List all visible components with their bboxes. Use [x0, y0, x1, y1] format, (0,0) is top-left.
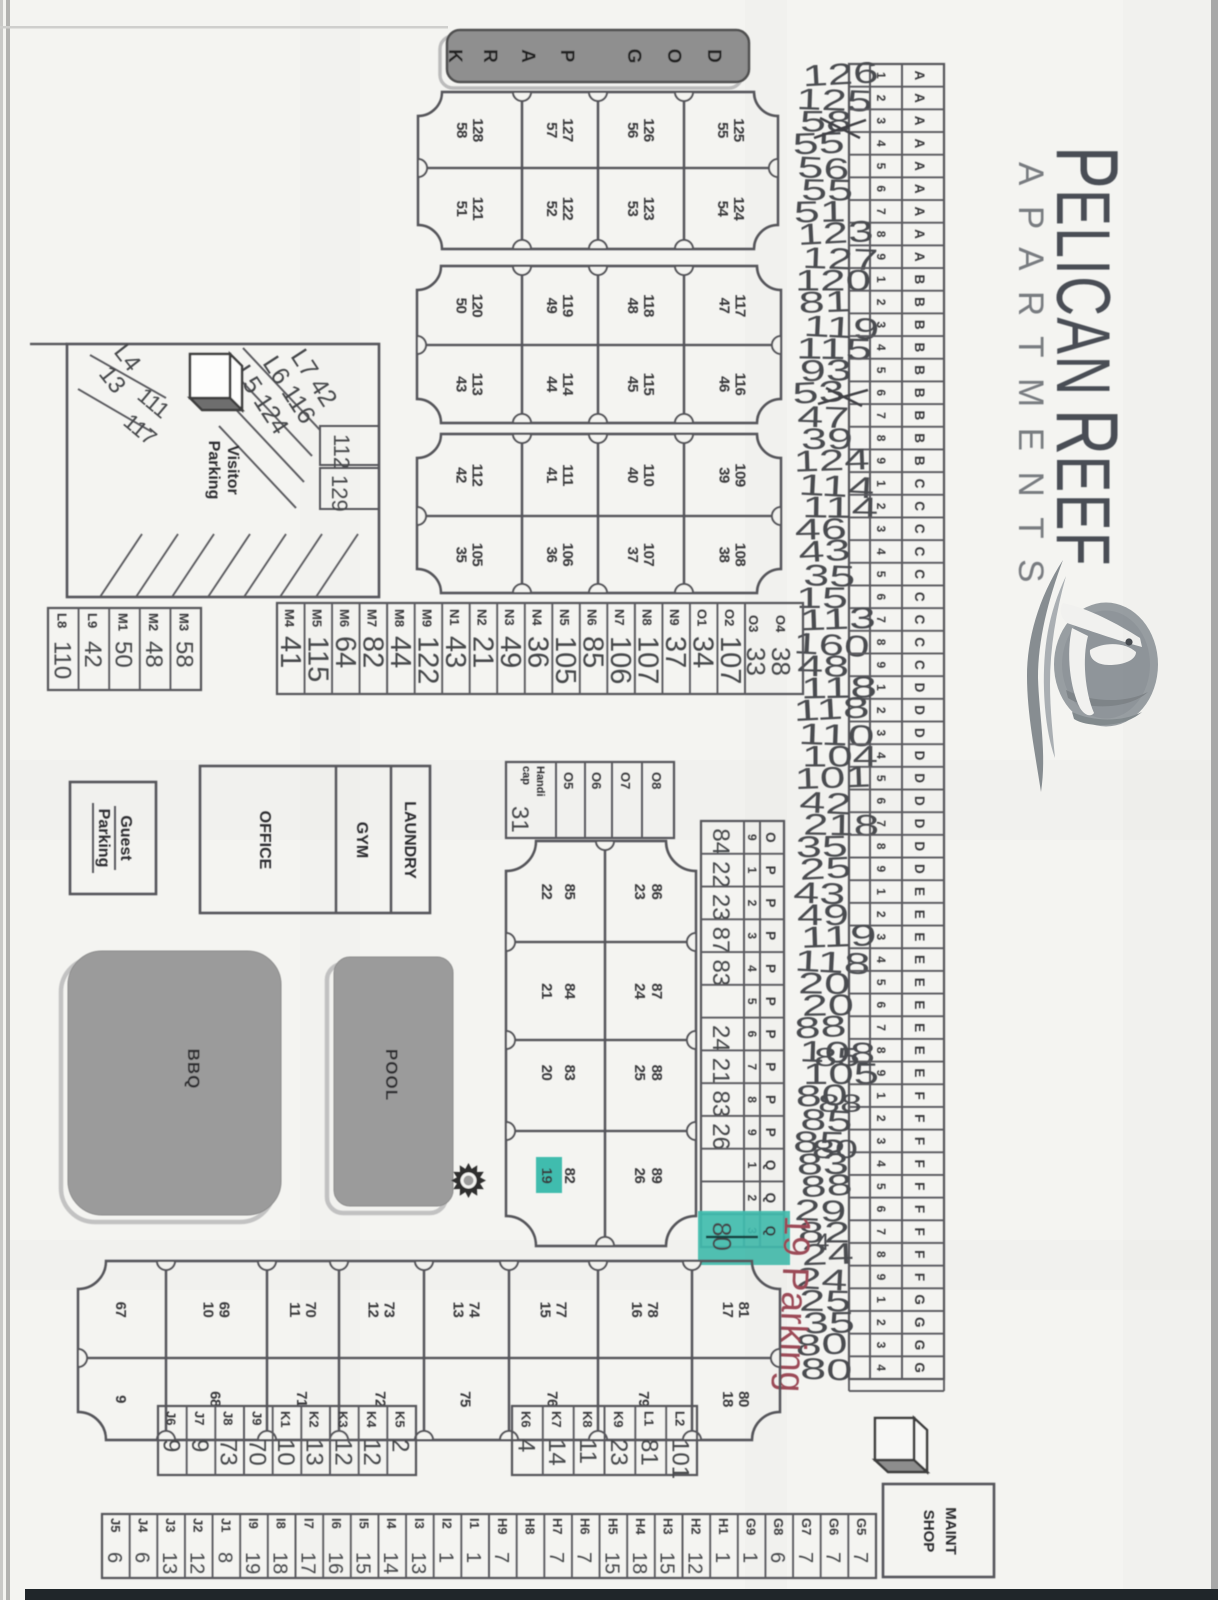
svg-text:83: 83	[561, 1065, 578, 1081]
svg-text:A: A	[912, 116, 927, 126]
svg-text:123: 123	[640, 197, 657, 221]
svg-text:7: 7	[874, 616, 888, 623]
svg-text:45: 45	[624, 376, 641, 392]
svg-text:H3: H3	[661, 1518, 676, 1535]
svg-text:F: F	[912, 1228, 927, 1236]
svg-text:8: 8	[874, 231, 888, 238]
svg-text:84: 84	[561, 983, 578, 1000]
svg-text:G: G	[912, 1340, 927, 1351]
svg-text:21: 21	[538, 983, 555, 999]
svg-text:80: 80	[812, 1134, 858, 1164]
svg-text:89: 89	[648, 1168, 665, 1184]
svg-text:8: 8	[874, 435, 888, 442]
svg-text:C: C	[912, 615, 927, 625]
svg-text:SHOP: SHOP	[920, 1510, 937, 1553]
svg-text:124: 124	[730, 197, 747, 222]
svg-text:2: 2	[874, 911, 888, 918]
svg-text:26: 26	[707, 1123, 734, 1150]
svg-text:15: 15	[656, 1552, 678, 1574]
svg-text:6: 6	[130, 1552, 152, 1563]
svg-text:1: 1	[435, 1552, 457, 1563]
svg-text:7: 7	[545, 1552, 567, 1563]
svg-text:C: C	[912, 592, 927, 602]
svg-text:19: 19	[241, 1552, 263, 1574]
svg-text:3: 3	[874, 1138, 888, 1145]
svg-text:K1: K1	[278, 1411, 293, 1428]
svg-text:35: 35	[453, 547, 470, 563]
svg-text:N3: N3	[502, 609, 517, 626]
svg-text:10: 10	[272, 1439, 299, 1466]
svg-text:A: A	[912, 70, 927, 80]
svg-text:9: 9	[874, 866, 888, 873]
svg-text:G6: G6	[827, 1518, 842, 1535]
svg-text:87: 87	[648, 983, 665, 999]
svg-text:15: 15	[537, 1302, 554, 1318]
svg-text:H5: H5	[605, 1518, 620, 1535]
svg-text:85: 85	[814, 1042, 860, 1072]
svg-text:9: 9	[112, 1395, 129, 1403]
svg-text:51: 51	[453, 201, 470, 217]
svg-text:73: 73	[215, 1439, 242, 1466]
svg-text:39: 39	[716, 467, 733, 483]
svg-text:G: G	[623, 49, 644, 64]
svg-text:4: 4	[874, 1364, 888, 1371]
svg-text:50: 50	[453, 298, 470, 314]
svg-text:1: 1	[874, 480, 888, 487]
svg-text:23: 23	[605, 1439, 632, 1466]
svg-text:N9: N9	[667, 609, 682, 626]
svg-text:56: 56	[624, 122, 641, 138]
svg-text:A: A	[912, 161, 927, 171]
svg-text:C: C	[912, 479, 927, 489]
svg-text:25: 25	[631, 1065, 648, 1081]
svg-text:8: 8	[874, 639, 888, 646]
svg-text:21: 21	[707, 1058, 734, 1085]
svg-text:APARTMENTS: APARTMENTS	[1011, 162, 1050, 603]
svg-text:47: 47	[716, 298, 733, 314]
svg-text:5: 5	[874, 1183, 888, 1190]
svg-text:11: 11	[574, 1439, 601, 1464]
svg-text:C: C	[912, 660, 927, 670]
svg-text:9: 9	[874, 661, 888, 668]
svg-text:41: 41	[543, 467, 560, 483]
svg-text:Parking: Parking	[205, 441, 222, 500]
svg-text:101: 101	[667, 1439, 694, 1479]
svg-text:83: 83	[707, 959, 734, 986]
svg-text:10: 10	[200, 1302, 217, 1318]
svg-text:4: 4	[874, 1160, 888, 1167]
svg-text:4: 4	[874, 956, 888, 963]
svg-text:37: 37	[624, 547, 641, 563]
svg-text:18: 18	[719, 1391, 736, 1407]
svg-text:K5: K5	[393, 1411, 408, 1428]
svg-text:G: G	[912, 1294, 927, 1305]
svg-text:R: R	[479, 49, 500, 63]
svg-text:38: 38	[716, 547, 733, 563]
svg-text:111: 111	[559, 464, 576, 486]
svg-text:5: 5	[874, 367, 888, 374]
svg-text:G: G	[912, 1317, 927, 1328]
svg-text:78: 78	[644, 1302, 661, 1318]
svg-text:M1: M1	[116, 613, 131, 631]
svg-text:122: 122	[559, 197, 576, 221]
svg-text:H2: H2	[688, 1518, 703, 1535]
svg-text:O1: O1	[695, 609, 710, 626]
svg-text:46: 46	[716, 376, 733, 392]
svg-text:N8: N8	[640, 609, 655, 626]
svg-text:5: 5	[874, 979, 888, 986]
svg-text:7: 7	[874, 1228, 888, 1235]
svg-text:115: 115	[640, 373, 657, 396]
svg-text:6: 6	[874, 185, 888, 192]
svg-text:5: 5	[874, 571, 888, 578]
svg-text:114: 114	[559, 373, 576, 397]
svg-text:N5: N5	[557, 609, 572, 626]
svg-text:54: 54	[714, 201, 731, 218]
svg-text:M7: M7	[364, 609, 379, 627]
svg-text:7: 7	[822, 1552, 844, 1563]
svg-text:113: 113	[469, 373, 486, 396]
svg-text:79: 79	[635, 1391, 652, 1407]
svg-text:9: 9	[874, 457, 888, 464]
svg-text:120: 120	[469, 294, 486, 318]
svg-text:7: 7	[874, 412, 888, 419]
svg-text:12: 12	[683, 1552, 705, 1574]
svg-text:76: 76	[544, 1391, 561, 1407]
svg-text:7: 7	[874, 208, 888, 215]
svg-text:72: 72	[372, 1391, 389, 1407]
svg-text:126: 126	[640, 118, 657, 142]
svg-text:J1: J1	[218, 1518, 233, 1532]
svg-text:H1: H1	[716, 1518, 731, 1535]
svg-text:1: 1	[874, 1092, 888, 1099]
svg-text:B: B	[912, 320, 927, 330]
svg-text:48: 48	[140, 641, 167, 668]
svg-text:J3: J3	[163, 1518, 178, 1532]
svg-text:7: 7	[794, 1552, 816, 1563]
svg-text:15: 15	[600, 1552, 622, 1574]
svg-text:26: 26	[631, 1168, 648, 1184]
svg-text:P: P	[556, 50, 577, 63]
svg-text:125: 125	[730, 118, 747, 142]
svg-text:1: 1	[462, 1552, 484, 1563]
svg-text:C: C	[912, 637, 927, 647]
svg-text:D: D	[912, 751, 927, 761]
svg-text:110: 110	[48, 641, 75, 679]
svg-text:M4: M4	[282, 609, 297, 628]
svg-text:2: 2	[387, 1439, 414, 1452]
svg-text:M8: M8	[392, 609, 407, 627]
svg-text:B: B	[912, 343, 927, 353]
svg-text:J7: J7	[192, 1411, 207, 1425]
svg-text:H9: H9	[495, 1518, 510, 1535]
svg-text:Visitor: Visitor	[224, 445, 241, 495]
svg-text:E: E	[912, 1046, 927, 1055]
svg-text:74: 74	[466, 1302, 483, 1319]
svg-text:I1: I1	[467, 1518, 482, 1529]
svg-text:14: 14	[379, 1552, 401, 1574]
svg-text:J2: J2	[191, 1518, 206, 1532]
svg-text:119: 119	[559, 294, 576, 317]
svg-text:O: O	[663, 49, 684, 64]
svg-text:N2: N2	[474, 609, 489, 626]
svg-text:J9: J9	[249, 1411, 264, 1425]
svg-text:43: 43	[453, 376, 470, 392]
svg-text:M3: M3	[177, 613, 192, 631]
svg-text:M9: M9	[419, 609, 434, 627]
svg-text:G5: G5	[854, 1518, 869, 1535]
svg-text:70: 70	[243, 1439, 270, 1466]
svg-text:6: 6	[874, 389, 888, 396]
svg-text:L2: L2	[673, 1411, 688, 1426]
svg-text:6: 6	[103, 1552, 125, 1563]
svg-text:E: E	[912, 1000, 927, 1009]
svg-text:44: 44	[543, 376, 560, 393]
svg-text:22: 22	[707, 861, 734, 888]
svg-text:I4: I4	[384, 1518, 399, 1530]
svg-text:MAINT: MAINT	[942, 1507, 959, 1555]
svg-text:A: A	[912, 138, 927, 148]
svg-text:K9: K9	[611, 1411, 626, 1428]
svg-text:8: 8	[874, 843, 888, 850]
svg-text:68: 68	[207, 1391, 224, 1407]
svg-text:B: B	[912, 411, 927, 421]
svg-text:57: 57	[543, 122, 560, 138]
svg-text:2: 2	[874, 1115, 888, 1122]
svg-text:A: A	[912, 206, 927, 216]
svg-text:E: E	[912, 887, 927, 896]
svg-text:B: B	[912, 365, 927, 375]
svg-text:H7: H7	[550, 1518, 565, 1535]
svg-text:9: 9	[157, 1439, 184, 1452]
svg-text:77: 77	[553, 1302, 570, 1318]
svg-text:D: D	[912, 705, 927, 715]
svg-text:127: 127	[559, 118, 576, 142]
svg-text:7: 7	[849, 1552, 871, 1563]
svg-text:E: E	[912, 910, 927, 919]
svg-text:F: F	[912, 1114, 927, 1122]
svg-text:F: F	[912, 1182, 927, 1190]
svg-text:128: 128	[469, 118, 486, 142]
svg-text:69: 69	[216, 1302, 233, 1318]
svg-text:H8: H8	[522, 1518, 537, 1535]
svg-text:14: 14	[543, 1439, 570, 1466]
svg-text:105: 105	[469, 543, 486, 567]
svg-text:1: 1	[874, 1296, 888, 1303]
svg-text:81: 81	[636, 1439, 663, 1466]
svg-text:20: 20	[538, 1065, 555, 1081]
svg-text:4: 4	[512, 1439, 539, 1452]
svg-text:D: D	[912, 864, 927, 874]
svg-text:H4: H4	[633, 1518, 648, 1535]
svg-text:D: D	[912, 728, 927, 738]
svg-text:17: 17	[719, 1302, 736, 1318]
svg-text:53: 53	[624, 201, 641, 217]
svg-text:A: A	[517, 49, 538, 63]
svg-text:L8: L8	[54, 613, 69, 628]
svg-text:3: 3	[874, 117, 888, 124]
svg-text:42: 42	[79, 641, 106, 668]
svg-text:N7: N7	[612, 609, 627, 626]
svg-text:52: 52	[543, 201, 560, 217]
svg-text:B: B	[912, 297, 927, 307]
svg-text:83: 83	[707, 1091, 734, 1118]
svg-text:2: 2	[874, 1319, 888, 1326]
svg-text:K6: K6	[518, 1411, 533, 1428]
svg-text:13: 13	[158, 1552, 180, 1574]
svg-text:6: 6	[874, 1002, 888, 1009]
svg-text:G: G	[912, 1362, 927, 1373]
svg-text:D: D	[703, 49, 724, 63]
svg-text:82: 82	[561, 1168, 578, 1184]
svg-text:C: C	[912, 547, 927, 557]
svg-text:7: 7	[490, 1552, 512, 1563]
svg-text:58: 58	[453, 122, 470, 138]
svg-text:L1: L1	[642, 1411, 657, 1426]
svg-text:K: K	[444, 49, 465, 63]
svg-text:110: 110	[640, 464, 657, 487]
svg-text:49: 49	[543, 298, 560, 314]
svg-text:C: C	[912, 501, 927, 511]
svg-text:2: 2	[874, 707, 888, 714]
svg-text:87: 87	[707, 927, 734, 954]
svg-text:8: 8	[213, 1552, 235, 1563]
svg-text:2: 2	[874, 95, 888, 102]
svg-text:D: D	[912, 841, 927, 851]
svg-text:F: F	[912, 1091, 927, 1099]
svg-text:6: 6	[874, 593, 888, 600]
svg-text:O2: O2	[722, 609, 737, 626]
svg-text:L9: L9	[85, 613, 100, 628]
svg-text:D: D	[912, 683, 927, 693]
svg-text:1: 1	[874, 888, 888, 895]
svg-text:18: 18	[269, 1552, 291, 1574]
svg-text:E: E	[912, 978, 927, 987]
svg-text:E: E	[912, 932, 927, 941]
svg-text:118: 118	[640, 294, 657, 317]
svg-text:67: 67	[112, 1302, 129, 1318]
svg-text:E: E	[912, 1068, 927, 1077]
svg-text:85: 85	[561, 884, 578, 900]
svg-text:B: B	[912, 388, 927, 398]
svg-text:40: 40	[624, 467, 641, 483]
svg-text:E: E	[912, 955, 927, 964]
svg-text:86: 86	[648, 884, 665, 900]
svg-text:13: 13	[407, 1552, 429, 1574]
svg-text:J6: J6	[163, 1411, 178, 1425]
svg-text:PELICANREEF: PELICANREEF	[1038, 146, 1136, 567]
svg-text:24: 24	[631, 983, 648, 1000]
svg-text:K7: K7	[549, 1411, 564, 1428]
svg-text:J5: J5	[108, 1518, 123, 1532]
svg-text:7: 7	[874, 1024, 888, 1031]
svg-text:I9: I9	[246, 1518, 261, 1529]
svg-text:1: 1	[711, 1552, 733, 1563]
svg-text:24: 24	[707, 1025, 734, 1052]
svg-text:3: 3	[874, 729, 888, 736]
svg-text:22: 22	[538, 884, 555, 900]
svg-text:12: 12	[186, 1552, 208, 1574]
svg-text:K4: K4	[364, 1411, 379, 1428]
svg-text:1: 1	[874, 276, 888, 283]
svg-text:121: 121	[469, 197, 486, 221]
svg-text:B: B	[912, 433, 927, 443]
svg-text:N4: N4	[530, 609, 545, 626]
svg-text:I3: I3	[412, 1518, 427, 1529]
svg-text:107: 107	[640, 543, 657, 567]
svg-text:6: 6	[874, 1206, 888, 1213]
svg-text:N6: N6	[585, 609, 600, 626]
svg-text:G7: G7	[799, 1518, 814, 1535]
svg-text:3: 3	[874, 1342, 888, 1349]
svg-text:A: A	[912, 93, 927, 103]
svg-text:POOL: POOL	[382, 1049, 401, 1101]
svg-text:F: F	[912, 1137, 927, 1145]
svg-text:4: 4	[874, 548, 888, 555]
svg-text:8: 8	[874, 1047, 888, 1054]
svg-text:F: F	[912, 1159, 927, 1167]
svg-text:36: 36	[543, 547, 560, 563]
svg-text:F: F	[912, 1205, 927, 1213]
svg-text:3: 3	[874, 525, 888, 532]
svg-text:18: 18	[628, 1552, 650, 1574]
svg-text:K8: K8	[580, 1411, 595, 1428]
svg-text:4: 4	[874, 140, 888, 147]
svg-text:106: 106	[559, 543, 576, 567]
svg-text:23: 23	[707, 894, 734, 921]
svg-text:A: A	[912, 229, 927, 239]
svg-text:88: 88	[648, 1065, 665, 1081]
svg-text:J4: J4	[135, 1518, 150, 1533]
svg-text:H6: H6	[578, 1518, 593, 1535]
svg-text:E: E	[912, 1023, 927, 1032]
svg-text:N1: N1	[447, 609, 462, 626]
svg-text:A: A	[912, 252, 927, 262]
svg-text:42: 42	[453, 467, 470, 483]
svg-text:2: 2	[874, 299, 888, 306]
svg-text:9: 9	[186, 1439, 213, 1452]
svg-text:73: 73	[381, 1302, 398, 1318]
svg-text:48: 48	[624, 298, 641, 314]
svg-text:C: C	[912, 524, 927, 534]
svg-text:23: 23	[631, 884, 648, 900]
svg-text:12: 12	[358, 1439, 385, 1466]
svg-text:50: 50	[110, 641, 137, 668]
svg-text:13: 13	[450, 1302, 467, 1318]
svg-text:A: A	[912, 184, 927, 194]
svg-text:I2: I2	[440, 1518, 455, 1529]
svg-text:BBQ: BBQ	[184, 1049, 203, 1090]
svg-text:B: B	[912, 275, 927, 285]
svg-text:B: B	[912, 456, 927, 466]
svg-text:5: 5	[874, 163, 888, 170]
svg-text:58: 58	[171, 641, 198, 668]
svg-text:55: 55	[714, 122, 731, 138]
svg-text:J8: J8	[221, 1411, 236, 1425]
svg-text:88: 88	[818, 1090, 862, 1118]
svg-text:7: 7	[573, 1552, 595, 1563]
svg-text:16: 16	[628, 1302, 645, 1318]
svg-text:19: 19	[538, 1168, 555, 1184]
svg-text:12: 12	[365, 1302, 382, 1318]
svg-text:4: 4	[874, 344, 888, 351]
svg-text:75: 75	[457, 1391, 474, 1407]
svg-text:C: C	[912, 569, 927, 579]
svg-text:112: 112	[469, 464, 486, 487]
svg-text:M2: M2	[146, 613, 161, 631]
svg-text:I8: I8	[274, 1518, 289, 1529]
